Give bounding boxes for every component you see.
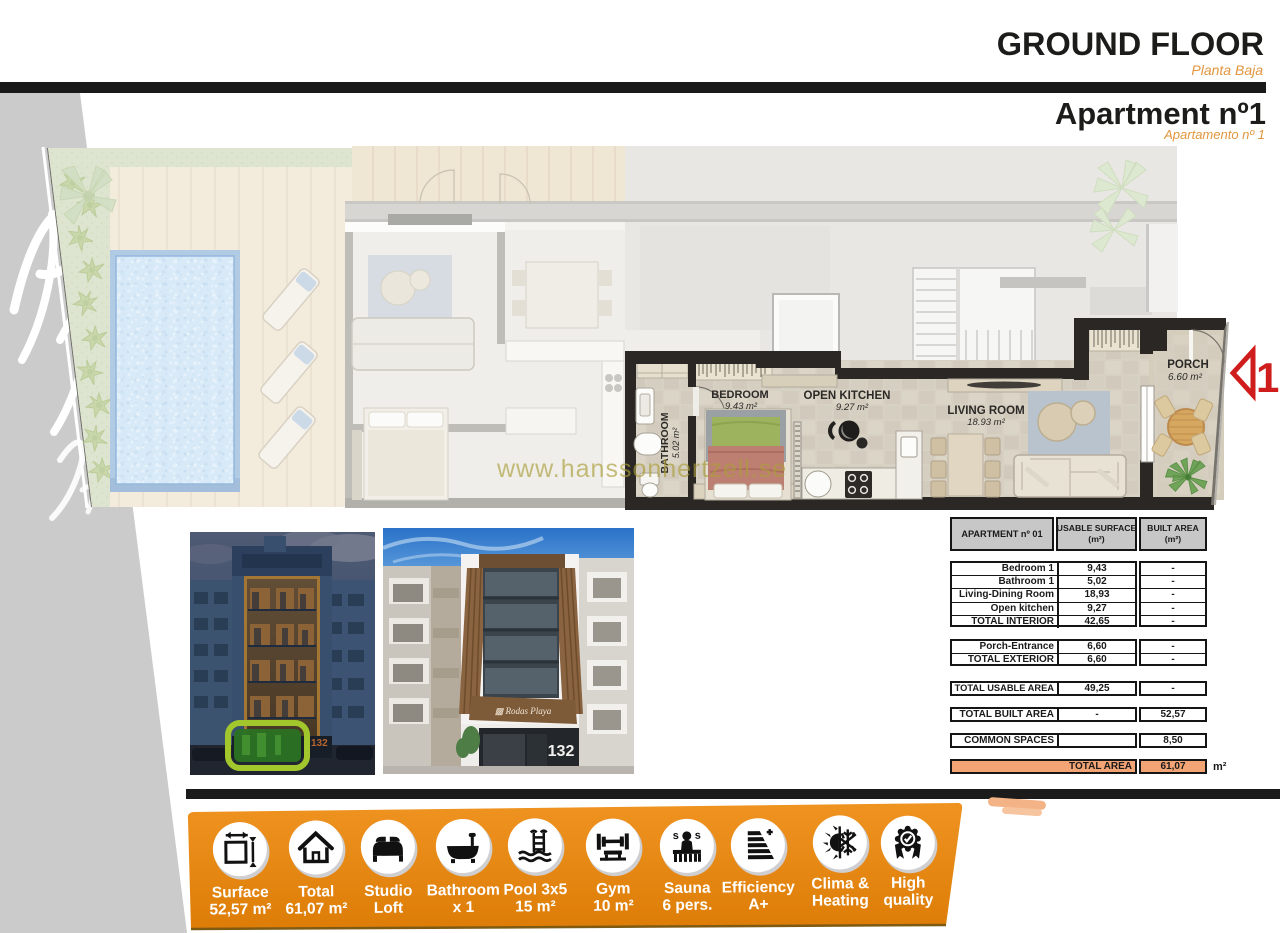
svg-text:Pool 3x5: Pool 3x5 [503,881,567,899]
svg-text:quality: quality [883,892,933,909]
svg-text:Surface: Surface [212,884,269,902]
svg-text:61,07 m²: 61,07 m² [285,900,347,918]
svg-text:x 1: x 1 [453,899,475,916]
svg-text:6 pers.: 6 pers. [662,897,712,914]
svg-text:Bathroom: Bathroom [427,882,500,900]
svg-text:Sauna: Sauna [664,880,711,897]
svg-text:15 m²: 15 m² [515,898,556,915]
svg-text:s: s [673,830,679,842]
svg-text:Studio: Studio [364,883,412,900]
svg-text:Efficiency: Efficiency [722,879,796,897]
svg-text:10 m²: 10 m² [593,897,634,914]
svg-text:A+: A+ [748,896,768,913]
svg-text:High: High [891,875,926,892]
svg-text:s: s [695,830,701,842]
svg-text:Total: Total [298,883,334,900]
svg-text:Clima &: Clima & [811,875,869,893]
svg-text:Gym: Gym [596,880,631,897]
svg-text:Heating: Heating [812,892,869,910]
svg-text:52,57 m²: 52,57 m² [209,901,271,919]
svg-text:Loft: Loft [374,900,403,917]
